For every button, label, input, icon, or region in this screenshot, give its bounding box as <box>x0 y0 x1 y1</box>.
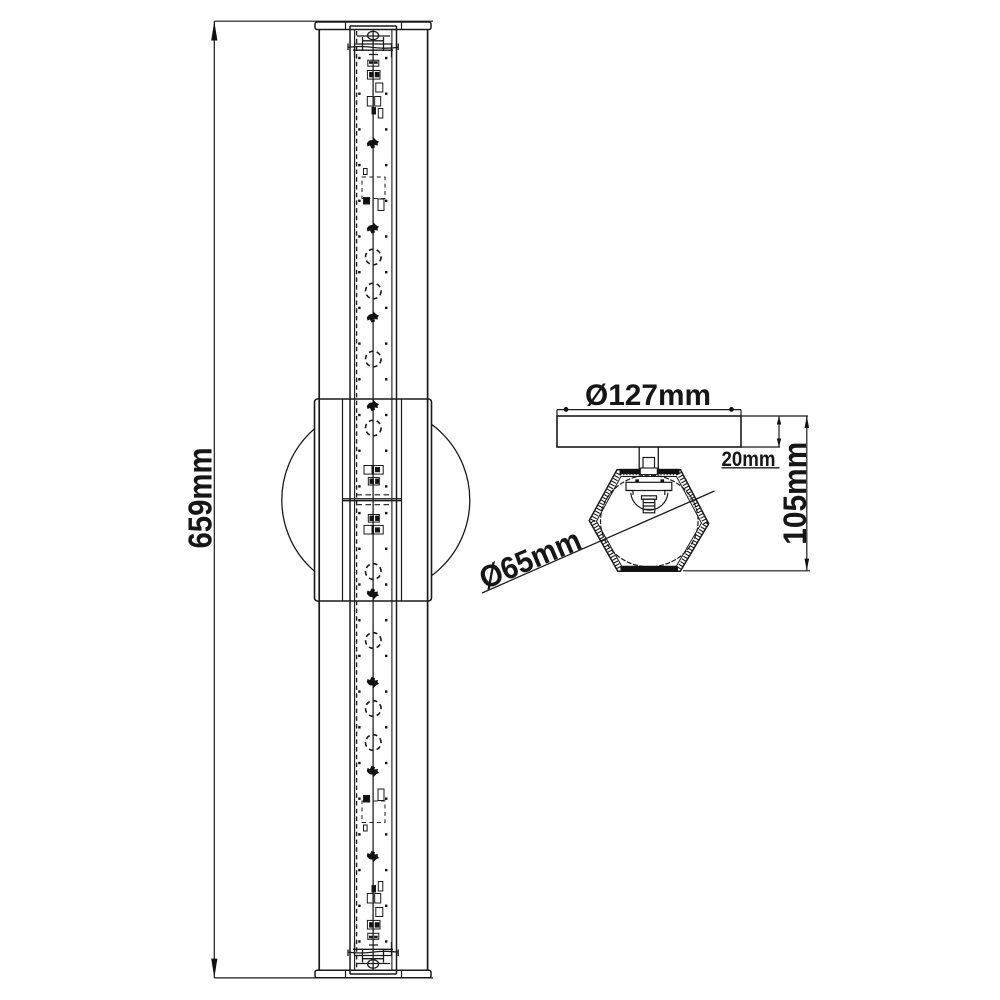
svg-text:Ø127mm: Ø127mm <box>585 379 711 412</box>
svg-text:659mm: 659mm <box>182 448 219 549</box>
svg-text:105mm: 105mm <box>777 442 813 545</box>
